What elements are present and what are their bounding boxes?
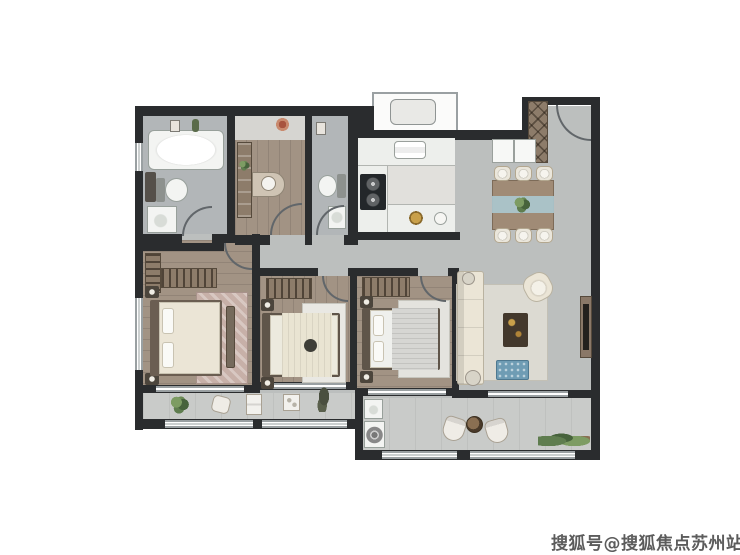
window-balcony-left-b <box>262 420 347 428</box>
bed3-duvet <box>392 308 438 370</box>
kitchen-plate <box>434 212 447 225</box>
master-bed <box>150 300 222 376</box>
master-pillow-1 <box>162 308 174 334</box>
study-shelf <box>237 142 252 218</box>
bath1-sink <box>147 206 177 233</box>
bed3-pillow-1 <box>373 315 384 336</box>
dining-chair-4 <box>494 228 511 243</box>
window-bed3-bottom <box>368 389 446 395</box>
bed3-bed <box>362 308 440 370</box>
bathtub <box>148 130 224 170</box>
kitchen-stove <box>360 174 386 210</box>
tv <box>583 304 589 350</box>
window-master-bottom <box>156 386 244 392</box>
wall-balcony-main-left <box>355 390 363 460</box>
floorplan-image: 搜狐号@搜狐焦点苏州站 <box>0 0 740 555</box>
dining-chair-2 <box>515 166 532 181</box>
wall-bed2-right <box>350 268 357 390</box>
window-master-left <box>135 298 143 370</box>
balcony-sink <box>364 399 383 419</box>
bed3-wardrobe <box>362 277 410 297</box>
toilet-2-bowl <box>318 175 337 197</box>
ac-unit <box>390 99 436 125</box>
dressing-mirror <box>261 176 276 191</box>
wall-top-left <box>135 106 352 116</box>
bath2-towel-frame <box>316 122 326 135</box>
toilet-2-tank <box>337 174 346 198</box>
dining-chair-1 <box>494 166 511 181</box>
wall-master-top <box>143 243 224 251</box>
wall-study-divider <box>305 106 312 245</box>
bed3-pillow-2 <box>373 341 384 362</box>
dining-chair-6 <box>536 228 553 243</box>
study-top-strip <box>235 116 305 140</box>
bath1-cabinet <box>145 172 156 202</box>
window-balcony-main-b <box>470 451 575 459</box>
sofa-side-table-top <box>462 272 475 285</box>
bed2-nightstand-top <box>261 299 274 311</box>
bed2-wardrobe <box>266 278 312 299</box>
sofa-side-table-bottom <box>465 370 481 386</box>
bed3-nightstand-bottom <box>360 371 373 383</box>
watermark: 搜狐号@搜狐焦点苏州站 <box>551 529 737 553</box>
dining-chair-3 <box>536 166 553 181</box>
toilet-1-tank <box>156 178 165 202</box>
study-plant <box>239 160 250 171</box>
window-balcony-main-a <box>382 451 457 459</box>
balcony-left-cart <box>283 394 300 411</box>
wall-bath2-bottom <box>344 235 358 245</box>
master-pillow-2 <box>162 342 174 368</box>
wall-bed2-top <box>260 268 318 276</box>
balcony-plants <box>538 429 590 449</box>
kitchen-pot <box>408 210 424 226</box>
wall-kitchen-bottom <box>358 232 460 240</box>
bath1-decor-bottle <box>192 119 199 132</box>
fridge <box>492 139 536 163</box>
wall-right <box>591 97 600 460</box>
balcony-left-plant <box>170 395 190 414</box>
blue-ottoman <box>496 360 529 380</box>
wall-master-right <box>252 234 260 393</box>
wall-bath1-divider <box>227 106 235 243</box>
bed2-nightstand-bottom <box>261 377 274 389</box>
balcony-left-box <box>246 394 262 415</box>
balcony-left-leaf-plant <box>315 386 333 412</box>
coffee-table <box>503 313 528 347</box>
master-nightstand-top <box>145 286 159 298</box>
dining-centerpiece <box>514 196 531 213</box>
wall-bath1-bottom-b <box>212 234 235 243</box>
kitchen-sink <box>394 141 426 159</box>
master-closet-top <box>161 268 217 288</box>
window-balcony-left-a <box>165 420 253 428</box>
window-bed2-bottom <box>270 383 346 389</box>
bed2-bed <box>262 313 340 377</box>
study-decor-red <box>276 118 289 131</box>
wall-bath1-bottom-a <box>143 234 182 243</box>
dining-chair-5 <box>515 228 532 243</box>
window-bath1-left <box>135 143 143 171</box>
sofa <box>457 271 484 385</box>
balcony-table <box>466 416 483 433</box>
washing-machine <box>364 421 385 448</box>
wall-bed3-top <box>357 268 418 276</box>
toilet-1-bowl <box>165 178 188 202</box>
bed3-nightstand-top <box>360 296 373 308</box>
master-bench <box>226 306 235 368</box>
bath1-decor-frame <box>170 120 180 132</box>
bed2-round-pillow <box>304 339 317 352</box>
window-living-bottom <box>488 391 568 397</box>
